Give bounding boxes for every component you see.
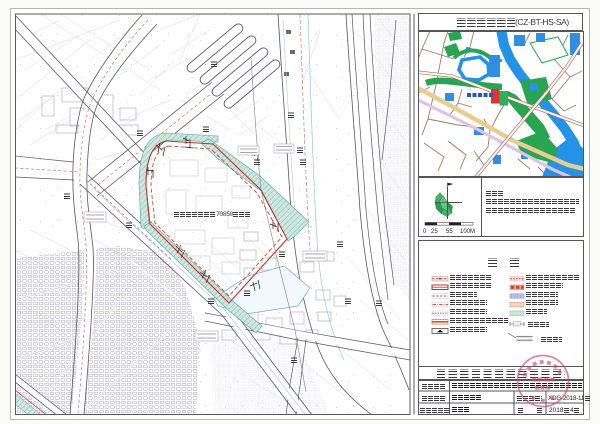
- svg-text:25: 25: [431, 229, 438, 235]
- svg-text:55: 55: [446, 229, 453, 235]
- svg-text:0: 0: [423, 229, 427, 235]
- svg-text:100M: 100M: [460, 229, 475, 235]
